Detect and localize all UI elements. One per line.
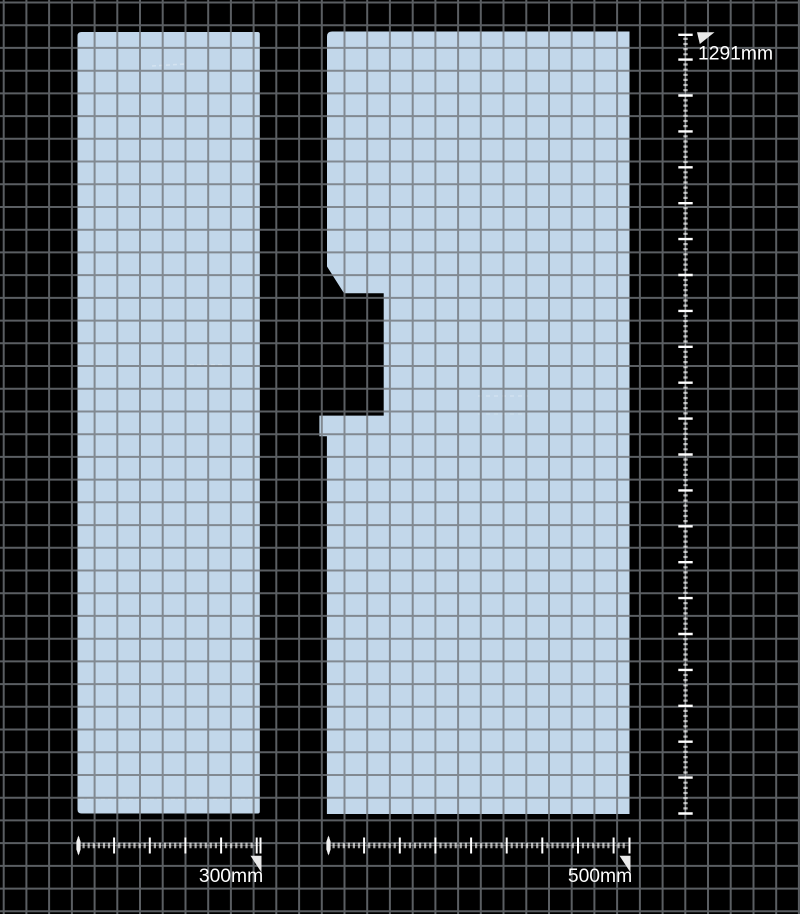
svg-text:300mm: 300mm [199, 866, 263, 887]
svg-text:500mm: 500mm [568, 866, 632, 887]
svg-text:1291mm: 1291mm [698, 44, 773, 65]
